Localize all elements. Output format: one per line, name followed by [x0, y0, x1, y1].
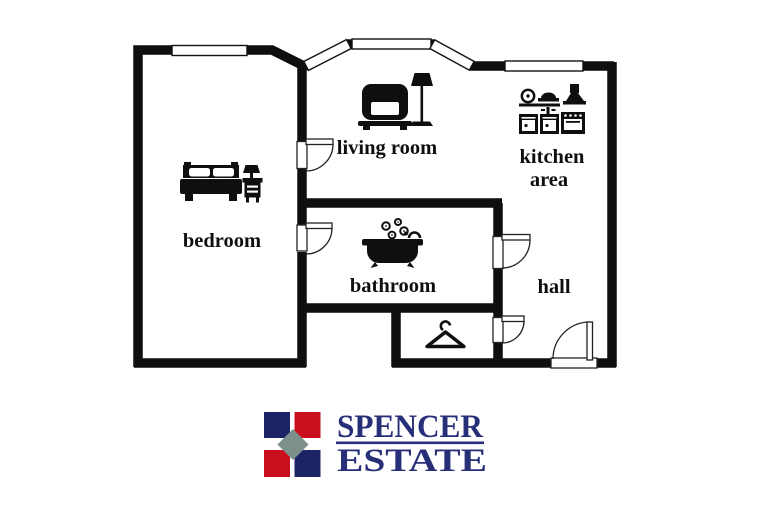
armchair-icon	[358, 84, 412, 130]
window-icon	[172, 46, 247, 56]
faucet-icon	[541, 107, 556, 114]
logo-square-top-right	[295, 412, 321, 438]
room-label-bathroom: bathroom	[350, 275, 436, 297]
logo-name-line1: SPENCER	[337, 409, 484, 445]
kitchen-appliances-icon	[519, 84, 586, 134]
sink-cabinet-icon	[540, 114, 559, 134]
sink-cabinet-icon	[519, 114, 538, 134]
cooker-hood-icon	[563, 84, 586, 105]
logo-name-line2: ESTATE	[337, 443, 487, 479]
bubbles-icon	[382, 219, 408, 238]
door-swing-icon	[297, 139, 333, 171]
logo-square-top-left	[264, 412, 290, 438]
room-label-bedroom: bedroom	[183, 230, 261, 252]
window-icon	[352, 39, 431, 49]
windows	[172, 39, 583, 71]
coat-hanger-icon	[427, 322, 464, 347]
room-label-kitchen-line2: area	[530, 169, 568, 191]
nightstand-lamp-icon	[243, 165, 263, 203]
window-icon	[505, 61, 583, 71]
floor-plan-canvas: bedroom living room kitchen area bathroo…	[0, 0, 770, 510]
room-label-hall: hall	[537, 276, 570, 298]
bathtub-icon	[362, 219, 423, 268]
agency-logo: SPENCER ESTATE	[264, 409, 487, 479]
bath-faucet-icon	[404, 232, 420, 239]
floor-plan-page: bedroom living room kitchen area bathroo…	[0, 0, 770, 510]
door-swing-icon	[493, 316, 524, 343]
shelf	[519, 104, 560, 107]
plate-icon	[522, 90, 534, 102]
stove-icon	[561, 112, 585, 134]
entrance-door-swing-icon	[551, 322, 597, 368]
bed-icon	[180, 162, 242, 201]
door-swing-icon	[493, 235, 530, 269]
room-label-kitchen-line1: kitchen	[520, 146, 586, 168]
window-icon	[304, 40, 351, 71]
window-icon	[430, 40, 474, 70]
room-label-living-room: living room	[337, 137, 437, 159]
floor-lamp-icon	[410, 73, 433, 126]
door-swing-icon	[297, 223, 332, 254]
wall-bedroom-outline	[138, 50, 306, 367]
logo-square-bottom-left	[264, 450, 290, 477]
serving-dish-icon	[538, 93, 559, 102]
